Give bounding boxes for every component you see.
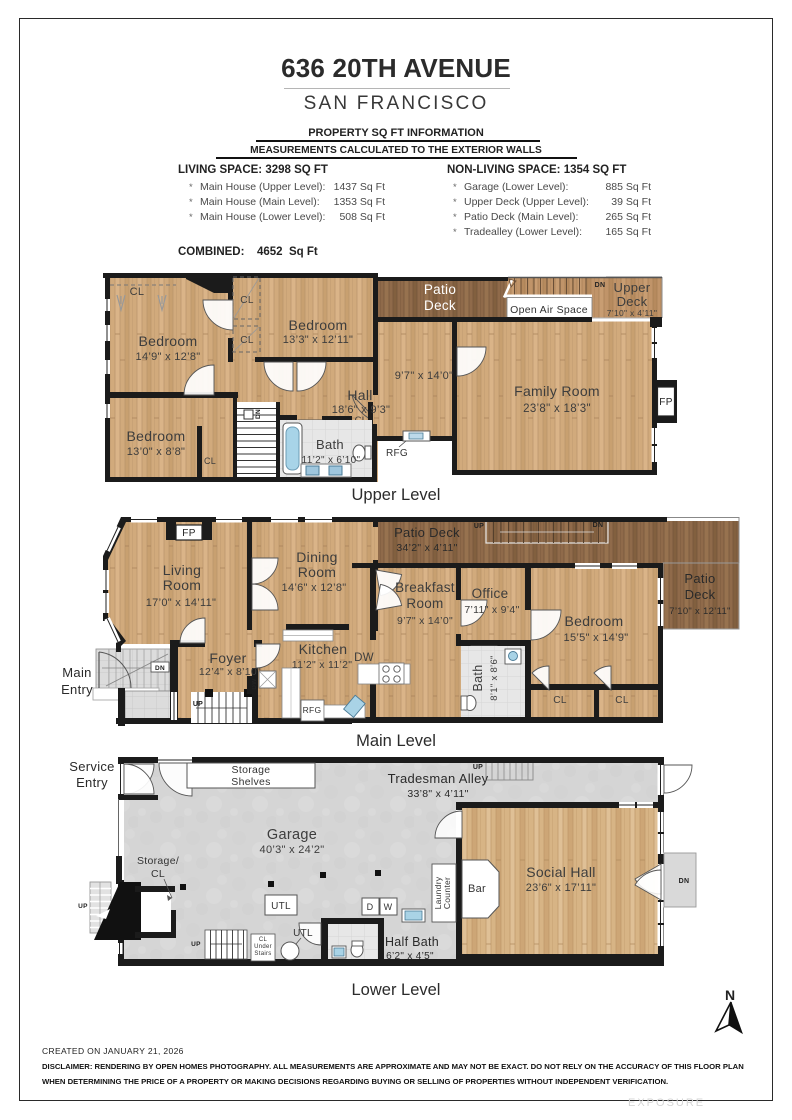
svg-text:Deck: Deck <box>424 298 456 313</box>
svg-text:Bedroom: Bedroom <box>289 317 348 333</box>
svg-text:13’3" x 12’11": 13’3" x 12’11" <box>283 334 354 346</box>
svg-text:Bedroom: Bedroom <box>565 613 624 629</box>
svg-text:15’5" x 14’9": 15’5" x 14’9" <box>564 632 629 644</box>
svg-text:12’4" x 8’10": 12’4" x 8’10" <box>199 666 261 678</box>
svg-text:UP: UP <box>191 941 201 948</box>
svg-text:Office: Office <box>472 586 509 601</box>
svg-text:RFG: RFG <box>303 705 322 715</box>
svg-text:34’2" x 4’11": 34’2" x 4’11" <box>396 542 457 554</box>
svg-text:18’6" x 9’3": 18’6" x 9’3" <box>332 404 391 416</box>
svg-text:DN: DN <box>595 282 606 289</box>
svg-text:Breakfast: Breakfast <box>395 580 455 595</box>
svg-text:Counter: Counter <box>442 877 452 909</box>
svg-text:Social Hall: Social Hall <box>526 864 595 880</box>
svg-text:Service: Service <box>69 759 114 774</box>
svg-text:FP: FP <box>182 528 195 539</box>
svg-text:Dining: Dining <box>296 549 338 565</box>
svg-text:Room: Room <box>406 596 443 611</box>
svg-text:UP: UP <box>474 523 484 530</box>
svg-text:DN: DN <box>255 409 262 419</box>
svg-text:CL: CL <box>240 295 254 306</box>
svg-text:Bar: Bar <box>468 883 486 895</box>
svg-text:23’6" x 17’11": 23’6" x 17’11" <box>526 882 597 894</box>
svg-text:W: W <box>384 902 393 912</box>
svg-text:UP: UP <box>78 903 88 910</box>
svg-text:Family Room: Family Room <box>514 383 600 399</box>
svg-text:13’0" x 8’8": 13’0" x 8’8" <box>127 446 186 458</box>
svg-text:7’10" x 4’11": 7’10" x 4’11" <box>607 308 657 318</box>
svg-text:Bedroom: Bedroom <box>139 333 198 349</box>
svg-text:CL: CL <box>151 868 165 880</box>
svg-text:Tradesman Alley: Tradesman Alley <box>388 771 489 786</box>
svg-text:UTL: UTL <box>271 901 291 912</box>
svg-text:23’8" x 18’3": 23’8" x 18’3" <box>523 403 591 415</box>
svg-text:CL: CL <box>240 335 254 346</box>
svg-text:Bath: Bath <box>471 665 485 692</box>
svg-text:7’10" x 12’11": 7’10" x 12’11" <box>669 606 730 617</box>
svg-text:Bath: Bath <box>316 437 344 452</box>
svg-text:DN: DN <box>155 665 165 672</box>
svg-text:Garage: Garage <box>267 827 317 843</box>
svg-text:DN: DN <box>679 878 690 885</box>
svg-text:CL: CL <box>259 937 268 943</box>
svg-text:RFG: RFG <box>386 448 408 459</box>
svg-text:Entry: Entry <box>61 682 93 697</box>
svg-text:UTL: UTL <box>293 928 313 939</box>
svg-text:Entry: Entry <box>76 775 108 790</box>
svg-text:Stairs: Stairs <box>254 951 271 957</box>
svg-text:Storage: Storage <box>232 764 271 776</box>
svg-text:17’0" x 14’11": 17’0" x 14’11" <box>146 597 217 609</box>
svg-text:11’2" x 11’2": 11’2" x 11’2" <box>292 659 353 671</box>
svg-text:Open Air Space: Open Air Space <box>510 304 588 316</box>
svg-text:Main: Main <box>62 665 91 680</box>
svg-text:UP: UP <box>473 764 483 771</box>
svg-text:Patio Deck: Patio Deck <box>394 525 460 540</box>
svg-text:Hall: Hall <box>347 387 372 403</box>
svg-text:CL: CL <box>615 695 629 706</box>
svg-text:6’2" x 4’5": 6’2" x 4’5" <box>386 951 434 962</box>
svg-text:CL: CL <box>130 286 145 298</box>
svg-text:Room: Room <box>298 564 337 580</box>
svg-text:Living: Living <box>163 562 201 578</box>
svg-text:Patio: Patio <box>684 571 715 586</box>
svg-text:DW: DW <box>251 678 258 690</box>
svg-text:14’9" x 12’8": 14’9" x 12’8" <box>136 351 201 363</box>
svg-text:FP: FP <box>659 397 672 408</box>
svg-text:Deck: Deck <box>685 587 716 602</box>
svg-text:Room: Room <box>163 577 202 593</box>
svg-text:Storage/: Storage/ <box>137 855 179 867</box>
svg-text:CL: CL <box>553 695 567 706</box>
svg-text:Deck: Deck <box>617 294 648 309</box>
svg-text:9’7" x 14’0": 9’7" x 14’0" <box>395 370 454 382</box>
svg-text:CL: CL <box>204 456 216 466</box>
svg-text:11’2" x 6’10": 11’2" x 6’10" <box>302 455 361 466</box>
svg-text:Shelves: Shelves <box>231 776 270 788</box>
svg-text:14’6" x 12’8": 14’6" x 12’8" <box>282 582 347 594</box>
svg-text:9’7" x 14’0": 9’7" x 14’0" <box>397 615 453 627</box>
svg-text:Under: Under <box>254 944 272 950</box>
svg-text:Half Bath: Half Bath <box>385 935 439 949</box>
svg-text:7’11" x 9’4": 7’11" x 9’4" <box>464 604 519 616</box>
svg-text:33’8" x 4’11": 33’8" x 4’11" <box>407 788 468 800</box>
svg-text:Foyer: Foyer <box>209 650 246 666</box>
svg-text:D: D <box>367 902 374 912</box>
svg-text:UP: UP <box>193 701 203 708</box>
svg-text:Upper: Upper <box>614 280 651 295</box>
svg-text:40’3" x 24’2": 40’3" x 24’2" <box>260 844 325 856</box>
svg-text:Kitchen: Kitchen <box>299 641 348 657</box>
svg-text:Patio: Patio <box>424 282 456 297</box>
svg-text:8’1" x 8’6": 8’1" x 8’6" <box>489 655 500 700</box>
svg-text:Bedroom: Bedroom <box>127 428 186 444</box>
svg-text:DW: DW <box>354 652 374 664</box>
svg-text:DN: DN <box>593 522 604 529</box>
